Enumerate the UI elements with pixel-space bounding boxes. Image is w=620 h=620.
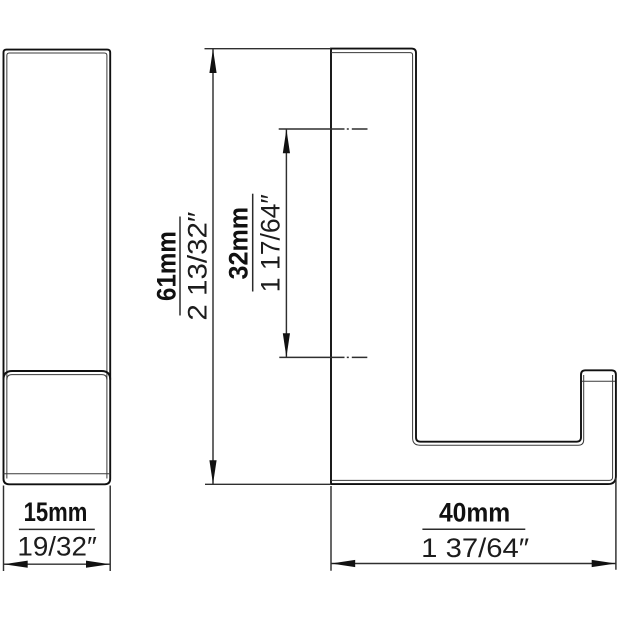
svg-text:19/32″: 19/32″ <box>17 532 97 562</box>
svg-text:61mm: 61mm <box>152 231 182 301</box>
svg-text:40mm: 40mm <box>439 498 510 528</box>
svg-text:1 17/64″: 1 17/64″ <box>255 194 285 292</box>
svg-text:32mm: 32mm <box>223 207 253 280</box>
svg-text:1 37/64″: 1 37/64″ <box>421 533 529 563</box>
svg-text:2 13/32″: 2 13/32″ <box>183 211 213 320</box>
svg-text:15mm: 15mm <box>24 497 88 527</box>
